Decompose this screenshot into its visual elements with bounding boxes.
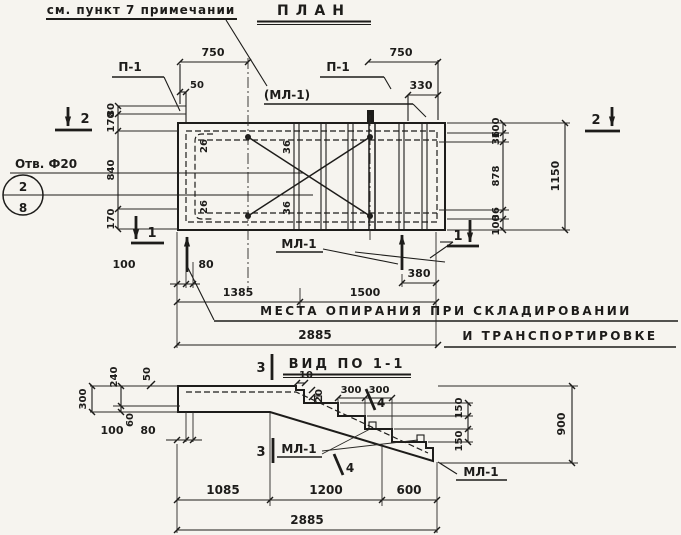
dim-300-tread-b: 300: [369, 385, 390, 396]
dim-1385: 1385: [223, 286, 254, 299]
section-marker-3-bottom: 3: [256, 445, 265, 460]
label-p1-left: П-1: [118, 60, 141, 74]
dim-150-riser-a: 150: [454, 398, 465, 419]
dim-300-tread-a: 300: [341, 385, 362, 396]
dim-10-notch: 10: [299, 370, 313, 381]
callout-position-number: 2: [19, 180, 27, 194]
dim-900-height: 900: [555, 412, 568, 435]
loop-rib-stub: [367, 110, 374, 123]
dim-80-bottom: 80: [198, 258, 214, 271]
dim-840-left: 840: [106, 160, 117, 181]
dim-1085: 1085: [206, 483, 239, 497]
dim-330: 330: [410, 79, 433, 92]
label-ml1-steps: МЛ-1: [281, 442, 316, 456]
dim-36-right-top: 36: [491, 131, 502, 145]
dim-170-left-lower: 170: [106, 209, 117, 230]
bar-position-36-bottom: 36: [282, 201, 293, 215]
section-marker-2-right: 2: [591, 113, 600, 128]
section-marker-1-left: 1: [147, 226, 156, 241]
support-note-line1: МЕСТА ОПИРАНИЯ ПРИ СКЛАДИРОВАНИИ: [260, 304, 632, 318]
dim-2885-plan: 2885: [298, 328, 331, 342]
dim-170-left-upper: 170: [106, 112, 117, 133]
section-marker-1-right: 1: [453, 229, 462, 244]
dim-150-riser-b: 150: [454, 431, 465, 452]
dim-2885-section: 2885: [290, 513, 323, 527]
dim-300-left: 300: [78, 389, 89, 410]
bar-position-26-top: 26: [199, 139, 210, 153]
dim-1150-overall: 1150: [549, 160, 562, 191]
technical-drawing: см. пункт 7 примечании ПЛАН: [0, 0, 681, 535]
dim-100-section-left: 100: [101, 424, 124, 437]
dim-878-right: 878: [491, 166, 502, 187]
position-4-a: 4: [377, 396, 385, 410]
dim-20-notch: 20: [314, 389, 325, 403]
dim-100-right-bottom: 100: [491, 215, 502, 236]
label-p1-right: П-1: [326, 60, 349, 74]
dim-60-left: 60: [125, 413, 136, 427]
note-reference: см. пункт 7 примечании: [47, 3, 236, 17]
hole-note: Отв. Ф20: [15, 157, 77, 171]
support-note-line2: И ТРАНСПОРТИРОВКЕ: [462, 329, 657, 343]
dim-750-left: 750: [202, 46, 225, 59]
bar-position-36-top: 36: [282, 140, 293, 154]
label-ml1-end: МЛ-1: [463, 465, 498, 479]
label-ml1-paren: (МЛ-1): [264, 88, 310, 102]
blueprint-page: см. пункт 7 примечании ПЛАН: [0, 0, 681, 535]
dim-240-left: 240: [109, 367, 120, 388]
position-4-b: 4: [346, 461, 354, 475]
dim-600: 600: [396, 483, 421, 497]
dim-100-bottom: 100: [113, 258, 136, 271]
dim-50-edge: 50: [190, 80, 204, 91]
section-marker-2-left: 2: [80, 112, 89, 127]
paper-background: [0, 0, 681, 535]
dim-750-right: 750: [390, 46, 413, 59]
dim-80-section-left: 80: [140, 424, 156, 437]
dim-380: 380: [408, 267, 431, 280]
section-marker-3-top: 3: [256, 361, 265, 376]
plan-title: ПЛАН: [277, 3, 351, 19]
callout-sheet-number: 8: [19, 201, 27, 215]
label-ml1-support: МЛ-1: [281, 237, 316, 251]
dim-1200: 1200: [309, 483, 342, 497]
dim-1500: 1500: [350, 286, 381, 299]
bar-position-26-bottom: 26: [199, 200, 210, 214]
dim-50-left: 50: [142, 367, 153, 381]
